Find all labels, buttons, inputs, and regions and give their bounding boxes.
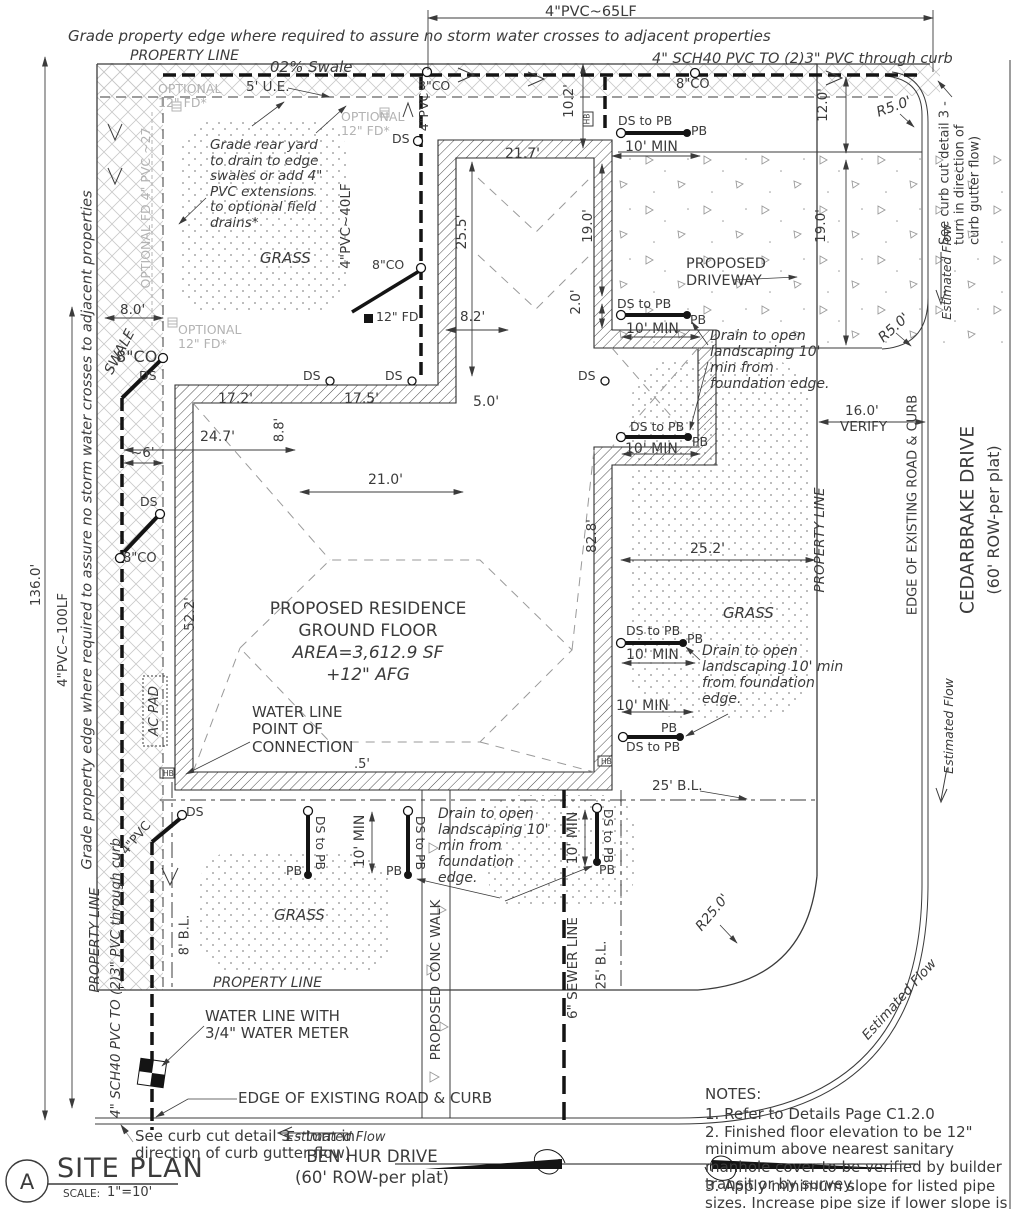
dim-19-0-right: 19.0': [814, 209, 830, 243]
dim-21-7: 21.7': [505, 146, 540, 162]
ben-hur-row: (60' ROW-per plat): [295, 1169, 449, 1188]
bl25-horizontal: 25' B.L.: [652, 779, 703, 795]
pb-5: PB: [661, 721, 677, 735]
dim-82-8: 82.8': [585, 519, 601, 553]
ds-mid-1: DS: [303, 369, 321, 383]
co8-top-right: 8"CO: [676, 78, 710, 93]
co8-left-1: 8"CO: [116, 348, 157, 366]
dim-half: .5': [354, 758, 370, 773]
sheet-title: SITE PLAN: [57, 1153, 204, 1184]
sch40-top: 4" SCH40 PVC TO (2)3" PVC through curb: [652, 51, 953, 68]
hb-2: HB: [163, 770, 174, 779]
detail-letter: A: [20, 1170, 34, 1194]
est-flow-mid-right: Estimated Flow: [942, 678, 956, 774]
proposed-driveway: PROPOSED DRIVEWAY: [686, 256, 798, 289]
residence-afg: +12" AFG: [326, 666, 410, 686]
ds-to-pb-5: DS to PB: [626, 740, 680, 754]
drain-note-1: Drain to open landscaping 10' min from f…: [710, 328, 838, 392]
optional-fd-line: OPTIONAL FD 4" PVC ~27: [139, 127, 153, 288]
residence-area: AREA=3,612.9 SF: [293, 644, 444, 664]
property-line-right: PROPERTY LINE: [813, 487, 829, 592]
cedarbrake-row: (60' ROW-per plat): [985, 445, 1003, 594]
drain-note-2: Drain to open landscaping 10' min from f…: [702, 643, 844, 707]
pb-b3: PB: [599, 863, 615, 877]
swale-pct: 02% Swale: [270, 59, 353, 76]
water-poc: WATER LINE POINT OF CONNECTION: [252, 704, 353, 756]
min10-2: 10' MIN: [626, 321, 679, 337]
bl25-vertical: 25' B.L.: [596, 941, 611, 990]
ds-mid-2: DS: [385, 369, 403, 383]
cedarbrake-drive: CEDARBRAKE DRIVE: [957, 426, 978, 614]
dim-pvc100: 4"PVC~100LF: [56, 593, 72, 687]
pb-3: PB: [692, 435, 708, 449]
ds-to-pb-3: DS to PB: [630, 420, 684, 434]
dim-8-2: 8.2': [460, 310, 485, 326]
dim-25-5: 25.5': [454, 214, 470, 249]
property-line-bottom: PROPERTY LINE: [213, 975, 322, 991]
sewer-line: 6" SEWER LINE: [566, 917, 582, 1019]
dim-136: 136.0': [29, 564, 45, 606]
sch40-left: 4" SCH40 PVC TO (2)3" PVC through curb: [109, 838, 125, 1118]
grass-topleft: GRASS: [260, 250, 311, 267]
dim-pvc40: 4"PVC~40LF: [339, 183, 355, 268]
co8-left-2: 8"CO: [123, 552, 157, 567]
ds-to-pb-b3: DS to PB: [601, 809, 615, 863]
ds-mid-3: DS: [578, 369, 596, 383]
site-plan-sheet: 4"PVC~65LF Grade property edge where req…: [0, 0, 1019, 1209]
dim-5-0: 5.0': [473, 394, 499, 410]
dim-6: ~6': [131, 446, 155, 462]
pb-4: PB: [687, 632, 703, 646]
residence-line1: PROPOSED RESIDENCE: [270, 600, 467, 620]
edge-road-bottom: EDGE OF EXISTING ROAD & CURB: [238, 1090, 492, 1107]
min10-1: 10' MIN: [625, 139, 678, 155]
ds-bottom-left: DS: [186, 805, 204, 819]
note-grade-top: Grade property edge where required to as…: [68, 28, 771, 45]
pvc4-garage: 4"PVC: [417, 93, 431, 132]
est-flow-bottom: Estimated Flow: [286, 1131, 385, 1146]
dim-pvc65: 4"PVC~65LF: [545, 4, 637, 21]
ds-to-pb-4: DS to PB: [626, 624, 680, 638]
co8-garage-top: 8"CO: [418, 79, 450, 93]
ac-pad: AC PAD: [147, 686, 163, 736]
dim-25-2: 25.2': [690, 541, 725, 557]
ds-to-pb-b2: DS to PB: [413, 816, 427, 870]
dim-17-2: 17.2': [218, 391, 253, 407]
notes-heading: NOTES:: [705, 1086, 761, 1103]
bl8: 8' B.L.: [179, 915, 194, 955]
dim-16-0: 16.0': [845, 404, 879, 420]
ds-garage-top: DS: [392, 132, 410, 146]
scale-value: 1"=10': [107, 1186, 152, 1201]
scale-label: SCALE:: [63, 1188, 100, 1200]
co8-mid: 8"CO: [372, 258, 404, 272]
water-meter-note: WATER LINE WITH 3/4" WATER METER: [205, 1008, 349, 1043]
grass-bottom: GRASS: [274, 907, 325, 924]
note-3: 3. Apply minimum slope for listed pipe s…: [705, 1178, 1019, 1209]
dim-2-0: 2.0': [569, 289, 585, 314]
pb-2: PB: [690, 313, 706, 327]
min10-b1: 10' MIN: [352, 815, 368, 868]
verify: VERIFY: [840, 420, 887, 436]
min10-5: 10' MIN: [616, 698, 669, 714]
hb-3: HB: [601, 758, 612, 767]
hb-1: HB: [584, 114, 593, 125]
min10-3: 10' MIN: [625, 441, 678, 457]
edge-road-right: EDGE OF EXISTING ROAD & CURB: [907, 395, 922, 615]
fd12-label: 12" FD: [376, 310, 418, 324]
property-line-top: PROPERTY LINE: [130, 48, 239, 64]
ue5: 5' U.E.: [246, 80, 290, 96]
see-curb-top: See curb cut detail 3 - turn in directio…: [939, 95, 984, 245]
note-grade-left: Grade property edge where required to as…: [80, 190, 97, 869]
dim-8-8: 8.8': [274, 418, 289, 442]
pb-b1: PB: [286, 864, 302, 878]
ds-left-2: DS: [140, 495, 158, 509]
ds-to-pb-2: DS to PB: [617, 297, 671, 311]
ds-to-pb-1: DS to PB: [618, 114, 672, 128]
dim-52-2: 52.2': [183, 597, 199, 631]
note-1: 1. Refer to Details Page C1.2.0: [705, 1106, 935, 1123]
dim-12-0: 12.0': [816, 88, 832, 122]
pb-b2: PB: [386, 864, 402, 878]
dim-24-7: 24.7': [200, 429, 235, 445]
grass-right: GRASS: [723, 605, 774, 622]
min10-4: 10' MIN: [626, 647, 679, 663]
ds-left-1: DS: [139, 369, 157, 383]
pb-1: PB: [691, 124, 707, 138]
optional-fd-1: OPTIONAL 12" FD*: [158, 82, 221, 111]
note-grade-rear: Grade rear yard to drain to edge swales …: [210, 138, 324, 231]
optional-fd-3: OPTIONAL 12" FD*: [178, 323, 241, 352]
conc-walk: PROPOSED CONC WALK: [429, 900, 445, 1061]
est-flow-top-right: Estimated Flow: [940, 224, 954, 320]
residence-line2: GROUND FLOOR: [298, 622, 437, 642]
drain-note-3: Drain to open landscaping 10' min from f…: [438, 806, 550, 886]
ds-to-pb-b1: DS to PB: [313, 816, 327, 870]
property-line-bottom-left: PROPERTY LINE: [88, 887, 104, 992]
dim-10-2: 10.2': [562, 84, 578, 118]
ben-hur-drive: BEN HUR DRIVE: [306, 1148, 437, 1167]
dim-19-0-garage: 19.0': [581, 209, 597, 243]
dim-17-5: 17.5': [344, 391, 379, 407]
min10-b3: 10' MIN: [565, 812, 581, 865]
dim-8-0: 8.0': [120, 303, 145, 319]
dim-21-0: 21.0': [368, 472, 403, 488]
